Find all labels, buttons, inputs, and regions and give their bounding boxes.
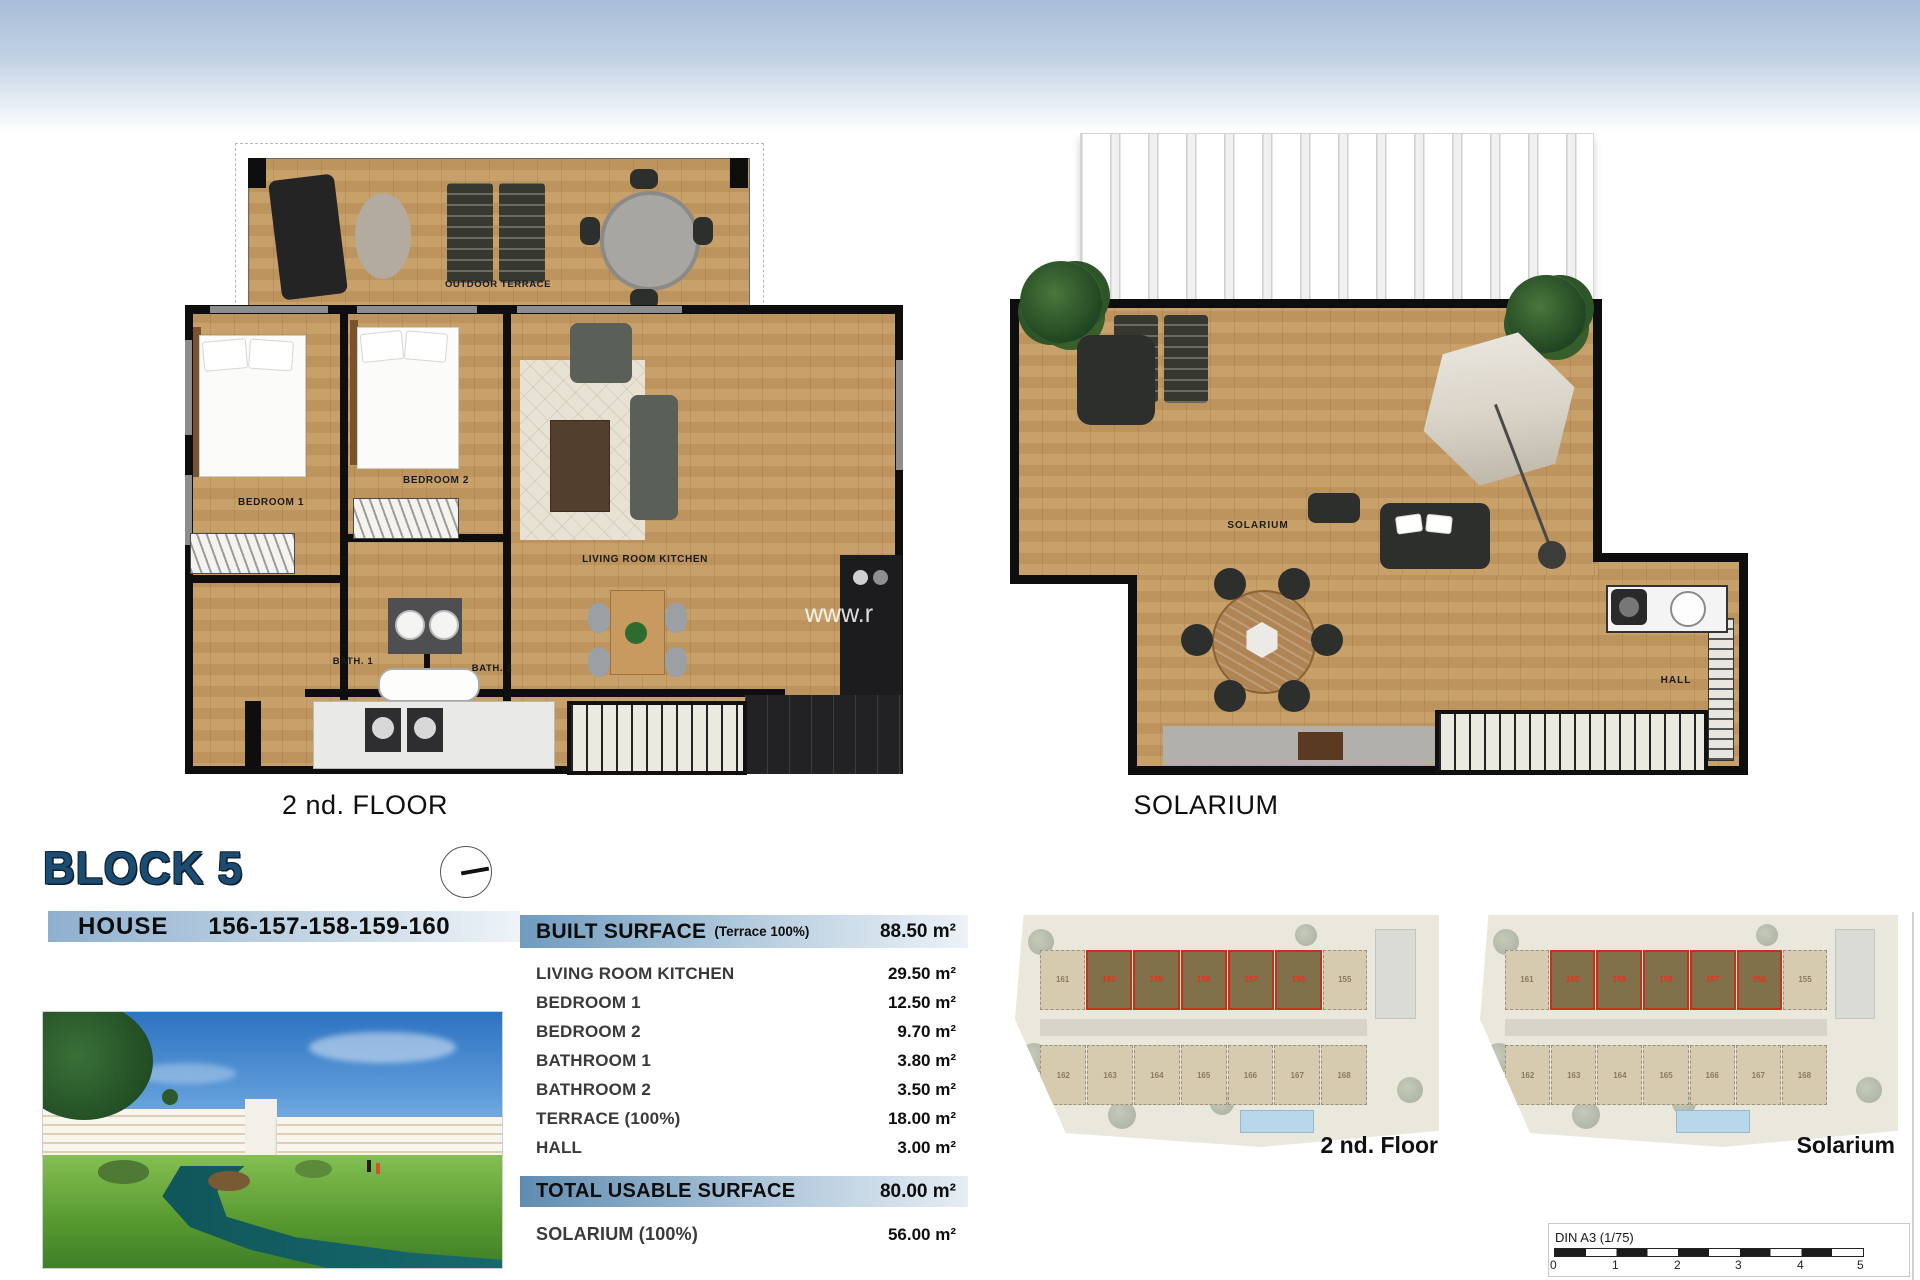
sun-lounger-graphic — [499, 183, 545, 283]
table-row: LIVING ROOM KITCHEN 29.50 m² — [520, 959, 968, 988]
scale-tick: 4 — [1797, 1258, 1804, 1272]
compass-needle-icon — [461, 867, 489, 876]
terrace-post — [730, 158, 748, 188]
block-title: BLOCK 5 — [43, 843, 243, 895]
dining-chair-graphic — [1214, 680, 1246, 712]
pillow-graphic — [360, 330, 405, 363]
caption-2nd-floor: 2 nd. FLOOR — [250, 790, 480, 821]
building-row-top: 161 160 159 158 157 156 155 — [1505, 950, 1827, 1010]
row-value: 3.00 m² — [897, 1138, 956, 1158]
siteplan-solarium: 161 160 159 158 157 156 155 162 163 164 … — [1480, 915, 1898, 1147]
parasol-base-graphic — [1538, 541, 1566, 569]
dining-chair-graphic — [1278, 568, 1310, 600]
dining-chair-graphic — [665, 647, 687, 677]
dining-chair-graphic — [665, 603, 687, 633]
house-label: HOUSE — [78, 913, 168, 941]
window-strip — [896, 360, 903, 470]
unit-cell-highlighted: 157 — [1690, 950, 1736, 1010]
table-row: HALL 3.00 m² — [520, 1133, 968, 1162]
pillow-graphic — [202, 338, 248, 372]
tree-graphic — [1295, 924, 1317, 946]
unit-cell-highlighted: 156 — [1275, 950, 1321, 1010]
unit-cell-highlighted: 159 — [1133, 950, 1179, 1010]
terrace-post — [248, 158, 266, 188]
room-label-bath2: BATH. 2 — [452, 663, 532, 674]
table-row: BATHROOM 1 3.80 m² — [520, 1046, 968, 1075]
wall — [245, 701, 261, 767]
terrace-rug-graphic — [355, 193, 411, 279]
unit-cell-highlighted: 160 — [1550, 950, 1596, 1010]
window-strip — [357, 306, 477, 313]
room-label-solarium: SOLARIUM — [1208, 520, 1308, 531]
table-row: BEDROOM 2 9.70 m² — [520, 1017, 968, 1046]
tree-graphic — [1397, 1077, 1423, 1103]
golfer-graphic — [376, 1163, 380, 1174]
unit-cell: 155 — [1323, 950, 1367, 1010]
pillow-graphic — [1425, 514, 1453, 535]
plant-graphic — [625, 622, 647, 644]
unit-cell: 163 — [1087, 1045, 1133, 1105]
sink-graphic — [1670, 591, 1706, 627]
burner-ring-graphic — [1619, 597, 1639, 617]
built-surface-value: 88.50 m² — [880, 921, 956, 943]
sofa-graphic — [1380, 503, 1490, 569]
dining-chair-graphic — [588, 647, 610, 677]
sofa-graphic — [630, 395, 678, 520]
building-row-top: 161 160 159 158 157 156 155 — [1040, 950, 1366, 1010]
washer-door-graphic — [372, 717, 394, 739]
unit-cell: 163 — [1551, 1045, 1596, 1105]
scale-label: DIN A3 (1/75) — [1555, 1230, 1634, 1245]
row-value: 12.50 m² — [888, 993, 956, 1013]
building-tower-graphic — [245, 1099, 277, 1160]
table-row: BATHROOM 2 3.50 m² — [520, 1075, 968, 1104]
unit-cell: 168 — [1782, 1045, 1827, 1105]
house-numbers: 156-157-158-159-160 — [208, 913, 450, 941]
row-value: 3.80 m² — [897, 1051, 956, 1071]
surface-table: BUILT SURFACE (Terrace 100%) 88.50 m² LI… — [520, 915, 968, 1249]
row-value: 3.50 m² — [897, 1080, 956, 1100]
unit-cell: 164 — [1134, 1045, 1180, 1105]
unit-cell: 165 — [1181, 1045, 1227, 1105]
room-label-living: LIVING ROOM KITCHEN — [565, 554, 725, 565]
wall — [1739, 553, 1748, 775]
room-label-outdoor-terrace: OUTDOOR TERRACE — [418, 279, 578, 290]
plan-sheet: OUTDOOR TERRACE BEDROOM 1 — [0, 0, 1920, 1280]
row-value: 29.50 m² — [888, 964, 956, 984]
wall — [1128, 575, 1137, 771]
wall — [305, 689, 785, 697]
row-label: BEDROOM 2 — [536, 1022, 641, 1042]
wall — [1010, 575, 1137, 584]
dining-chair-graphic — [1214, 568, 1246, 600]
dining-chair-graphic — [1181, 624, 1213, 656]
unit-cell-highlighted: 158 — [1181, 950, 1227, 1010]
dining-chair-graphic — [1278, 680, 1310, 712]
terrace-chair-graphic — [693, 217, 713, 245]
pergola-slats-graphic — [1080, 133, 1594, 307]
row-value: 56.00 m² — [888, 1225, 956, 1245]
wall — [1010, 299, 1019, 581]
stairs-graphic — [1435, 710, 1708, 774]
property-photo — [43, 1012, 502, 1268]
row-label: HALL — [536, 1138, 582, 1158]
golfer-graphic — [367, 1160, 371, 1172]
frame-line — [1912, 912, 1914, 1280]
room-label-hall: HALL — [1636, 675, 1716, 686]
pool-graphic — [1676, 1110, 1749, 1133]
siteplan-label-solarium: Solarium — [1760, 1132, 1895, 1159]
unit-cell: 167 — [1274, 1045, 1320, 1105]
unit-cell-highlighted: 156 — [1737, 950, 1783, 1010]
unit-cell: 162 — [1040, 1045, 1086, 1105]
unit-cell-highlighted: 158 — [1643, 950, 1689, 1010]
row-label: BATHROOM 2 — [536, 1080, 651, 1100]
pillow-graphic — [1395, 513, 1423, 534]
room-label-bath1: BATH. 1 — [313, 656, 393, 667]
unit-cell: 162 — [1505, 1045, 1550, 1105]
armchair-graphic — [1077, 335, 1155, 425]
scale-tick: 5 — [1857, 1258, 1864, 1272]
unit-cell: 161 — [1505, 950, 1549, 1010]
house-bar: HOUSE 156-157-158-159-160 — [48, 911, 520, 942]
tree-graphic — [1756, 924, 1778, 946]
terrace-chair-graphic — [580, 217, 600, 245]
building-row-bottom: 162 163 164 165 166 167 168 — [1505, 1045, 1827, 1105]
wardrobe-graphic — [190, 533, 295, 574]
dining-chair-graphic — [588, 603, 610, 633]
cloud-graphic — [309, 1032, 456, 1063]
unit-cell-highlighted: 157 — [1228, 950, 1274, 1010]
tree-graphic — [1856, 1077, 1882, 1103]
building-slab-graphic — [1835, 929, 1875, 1019]
row-label: LIVING ROOM KITCHEN — [536, 964, 734, 984]
pillow-graphic — [404, 330, 448, 363]
hob-graphic — [853, 570, 868, 585]
unit-cell: 165 — [1643, 1045, 1688, 1105]
window-strip — [210, 306, 328, 313]
unit-cell: 164 — [1597, 1045, 1642, 1105]
sink-graphic — [429, 610, 459, 640]
solarium-row: SOLARIUM (100%) 56.00 m² — [520, 1220, 968, 1249]
chair-graphic — [1308, 493, 1360, 523]
unit-cell: 167 — [1736, 1045, 1781, 1105]
kitchen-cabinets-graphic — [745, 695, 902, 774]
table-row: BEDROOM 1 12.50 m² — [520, 988, 968, 1017]
floorplan-2nd-floor: OUTDOOR TERRACE BEDROOM 1 — [185, 155, 903, 780]
ladder-strip-graphic — [1708, 618, 1734, 761]
scale-tick: 3 — [1735, 1258, 1742, 1272]
hob-graphic — [873, 570, 888, 585]
road-strip — [1040, 1019, 1366, 1035]
built-surface-label: BUILT SURFACE — [536, 920, 706, 944]
terrace-chair-graphic — [630, 169, 658, 189]
pool-graphic — [1240, 1110, 1314, 1133]
building-row-bottom: 162 163 164 165 166 167 168 — [1040, 1045, 1366, 1105]
stairs-graphic — [567, 701, 747, 775]
scale-box: DIN A3 (1/75) 0 1 2 3 4 5 — [1548, 1223, 1910, 1277]
unit-cell: 166 — [1228, 1045, 1274, 1105]
row-label: BATHROOM 1 — [536, 1051, 651, 1071]
window-strip — [517, 306, 682, 313]
unit-cell: 166 — [1690, 1045, 1735, 1105]
compass-icon — [440, 846, 492, 898]
unit-cell-highlighted: 159 — [1596, 950, 1642, 1010]
floorplan-solarium: SOLARIUM HALL — [1008, 155, 1748, 780]
planter-box-graphic — [1298, 732, 1343, 760]
watermark: www.r — [805, 600, 873, 629]
wall — [340, 540, 348, 700]
washer-door-graphic — [414, 717, 436, 739]
total-value: 80.00 m² — [880, 1181, 956, 1203]
building-graphic — [277, 1117, 502, 1161]
road-strip — [1505, 1019, 1827, 1035]
built-surface-header: BUILT SURFACE (Terrace 100%) 88.50 m² — [520, 915, 968, 948]
table-row: TERRACE (100%) 18.00 m² — [520, 1104, 968, 1133]
total-label: TOTAL USABLE SURFACE — [536, 1180, 795, 1203]
terrace-table-graphic — [600, 191, 700, 291]
room-label-bedroom2: BEDROOM 2 — [386, 475, 486, 486]
window-strip — [185, 340, 192, 435]
wall — [1593, 299, 1602, 559]
row-label: TERRACE (100%) — [536, 1109, 681, 1129]
row-value: 9.70 m² — [897, 1022, 956, 1042]
total-usable-row: TOTAL USABLE SURFACE 80.00 m² — [520, 1176, 968, 1207]
scale-tick: 2 — [1674, 1258, 1681, 1272]
row-value: 18.00 m² — [888, 1109, 956, 1129]
caption-solarium: SOLARIUM — [1106, 790, 1306, 821]
row-label: SOLARIUM (100%) — [536, 1224, 698, 1245]
unit-cell: 161 — [1040, 950, 1084, 1010]
dining-chair-graphic — [1311, 624, 1343, 656]
wall — [1593, 553, 1748, 562]
scale-bar-graphic — [1554, 1248, 1864, 1257]
armchair-graphic — [570, 323, 632, 383]
scale-tick: 1 — [1612, 1258, 1619, 1272]
wardrobe-graphic — [353, 498, 459, 539]
sun-lounger-graphic — [447, 183, 493, 283]
plant-graphic — [1020, 261, 1102, 343]
coffee-table-graphic — [550, 420, 610, 512]
bush-graphic — [208, 1171, 249, 1191]
building-slab-graphic — [1375, 929, 1415, 1019]
room-label-bedroom1: BEDROOM 1 — [221, 497, 321, 508]
unit-cell-highlighted: 160 — [1086, 950, 1132, 1010]
pillow-graphic — [248, 339, 294, 372]
sun-lounger-graphic — [1164, 315, 1208, 403]
scale-tick: 0 — [1550, 1258, 1557, 1272]
unit-cell: 168 — [1321, 1045, 1367, 1105]
bush-graphic — [98, 1160, 148, 1183]
sky-gradient-band — [0, 0, 1920, 132]
siteplan-2nd-floor: 161 160 159 158 157 156 155 162 163 164 … — [1015, 915, 1439, 1147]
wall — [185, 575, 345, 583]
sink-graphic — [395, 610, 425, 640]
unit-cell: 155 — [1783, 950, 1827, 1010]
built-surface-note: (Terrace 100%) — [714, 924, 809, 939]
siteplan-label-2nd-floor: 2 nd. Floor — [1298, 1132, 1438, 1159]
row-label: BEDROOM 1 — [536, 993, 641, 1013]
